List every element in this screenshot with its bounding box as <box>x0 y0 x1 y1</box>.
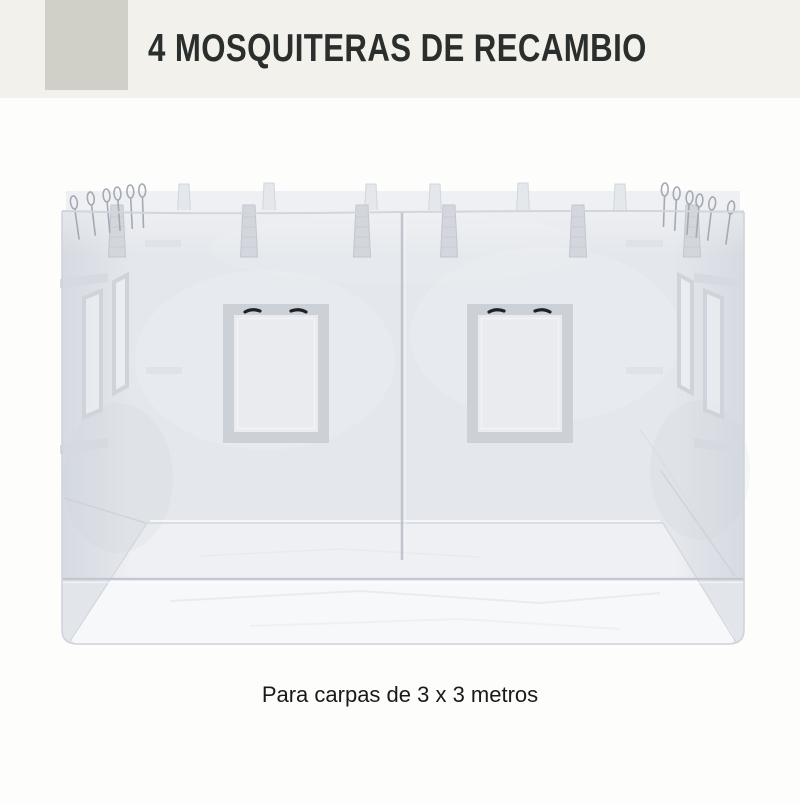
product-image-area <box>0 0 800 800</box>
size-caption: Para carpas de 3 x 3 metros <box>0 682 800 708</box>
net-window-right <box>467 304 573 443</box>
side-window-left <box>84 291 101 417</box>
side-window-right <box>679 275 692 393</box>
mosquito-net-illustration <box>0 0 800 800</box>
back-tie <box>146 367 182 374</box>
hang-strap <box>570 205 587 257</box>
highlight-blotch <box>210 212 590 284</box>
ground-sheet-through-mesh <box>110 523 698 579</box>
ground-sheet <box>71 579 734 644</box>
side-window-right <box>705 291 722 417</box>
back-tie <box>626 240 663 247</box>
header-banner: 4 MOSQUITERAS DE RECAMBIO <box>0 0 800 98</box>
header-accent-square <box>45 0 128 90</box>
shadow-blotch <box>63 403 173 553</box>
product-title: 4 MOSQUITERAS DE RECAMBIO <box>148 0 647 98</box>
back-tie <box>626 367 663 374</box>
hang-strap <box>441 205 458 257</box>
back-tie <box>145 240 181 247</box>
net-window-left <box>223 304 329 443</box>
side-window-left <box>114 275 127 393</box>
net-back-wall-band <box>66 191 740 212</box>
